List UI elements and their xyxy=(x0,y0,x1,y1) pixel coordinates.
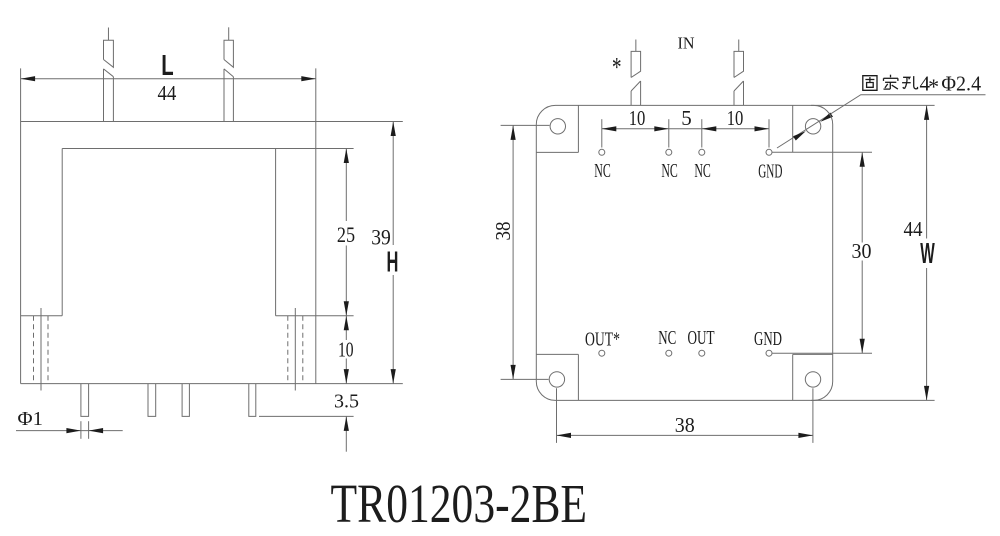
svg-text:5: 5 xyxy=(681,106,692,130)
svg-text:NC: NC xyxy=(658,327,676,349)
svg-text:W: W xyxy=(920,238,935,270)
svg-text:10: 10 xyxy=(629,106,646,130)
svg-text:10: 10 xyxy=(727,106,744,130)
svg-text:GND: GND xyxy=(754,328,782,350)
svg-text:10: 10 xyxy=(338,338,354,362)
svg-text:H: H xyxy=(387,247,399,279)
svg-text:NC: NC xyxy=(661,160,678,182)
svg-text:OUT*: OUT* xyxy=(585,328,620,350)
svg-text:Φ2.4: Φ2.4 xyxy=(941,72,981,96)
svg-text:44: 44 xyxy=(157,81,176,105)
svg-text:25: 25 xyxy=(337,222,355,247)
svg-text:OUT: OUT xyxy=(688,327,715,349)
svg-text:38: 38 xyxy=(675,413,695,437)
svg-text:NC: NC xyxy=(594,160,611,182)
svg-text:L: L xyxy=(161,50,173,82)
svg-text:3.5: 3.5 xyxy=(334,391,359,413)
svg-text:*: * xyxy=(928,74,939,99)
svg-text:Φ1: Φ1 xyxy=(18,408,43,430)
svg-text:NC: NC xyxy=(694,160,711,182)
svg-text:*: * xyxy=(612,52,622,82)
svg-text:39: 39 xyxy=(371,224,391,249)
svg-text:30: 30 xyxy=(852,239,872,263)
svg-text:38: 38 xyxy=(491,222,515,241)
svg-text:GND: GND xyxy=(758,160,782,182)
svg-text:TR01203-2BE: TR01203-2BE xyxy=(331,473,588,534)
svg-text:IN: IN xyxy=(678,34,695,53)
